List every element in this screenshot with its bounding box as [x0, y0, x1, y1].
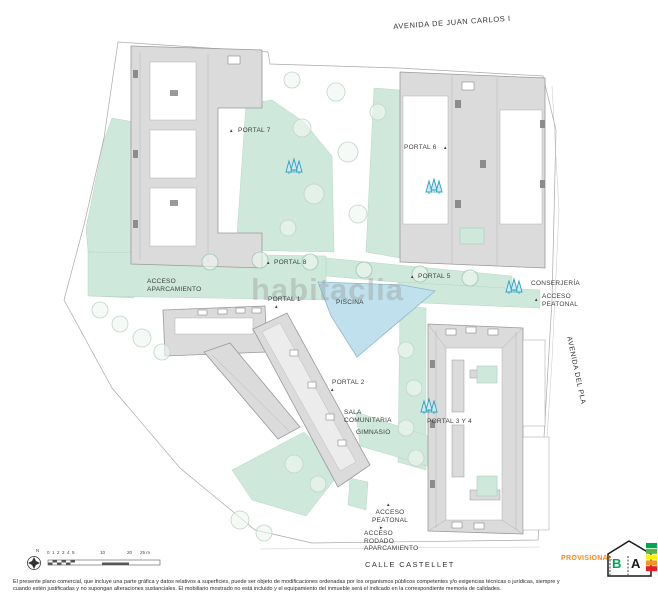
compass-north-label: N: [36, 549, 39, 554]
label-acceso-peatonal-este: ACCESO PEATONAL: [542, 293, 578, 308]
scale-tick: 1: [52, 551, 55, 556]
label-portal-6: PORTAL 6: [404, 144, 437, 152]
disclaimer-line-1: El presente plano comercial, que incluye…: [13, 579, 653, 586]
marker-portal-6-icon: ▲: [443, 146, 447, 151]
marker-portal-5-icon: ▲: [410, 275, 414, 280]
energy-letter-b: B: [612, 557, 621, 570]
label-portal-1: PORTAL 1: [268, 296, 301, 304]
site-plan-page: habitaclia AVENIDA DE JUAN CARLOS I AVEN…: [0, 0, 658, 600]
label-portal-7: PORTAL 7: [238, 127, 271, 135]
label-acceso-rodado: ACCESO RODADO APARCAMIENTO: [364, 530, 418, 553]
label-acceso-aparcamiento: ACCESO APARCAMIENTO: [147, 278, 201, 293]
label-gimnasio: GIMNASIO: [356, 429, 391, 437]
street-calle-castellet: CALLE CASTELLET: [365, 560, 455, 569]
label-acceso-peatonal-sur: ACCESO PEATONAL: [362, 509, 418, 524]
marker-portal-7-icon: ▲: [229, 129, 233, 134]
scale-tick: 10: [100, 551, 105, 556]
scale-bar: [48, 560, 160, 565]
label-portal-3-4: PORTAL 3 Y 4: [427, 418, 472, 426]
scale-tick: 0: [47, 551, 50, 556]
marker-acceso-peatonal-sur-icon: ▲: [386, 503, 390, 508]
disclaimer-line-2: cuando estén justificadas y no supongan …: [13, 586, 653, 593]
label-sala-comunitaria: SALA COMUNITARIA: [344, 409, 392, 424]
label-conserjeria: CONSERJERÍA: [531, 280, 580, 288]
scale-tick: 25 m: [140, 551, 150, 556]
label-portal-5: PORTAL 5: [418, 273, 451, 281]
marker-portal-8-icon: ▲: [266, 261, 270, 266]
marker-portal-1-icon: ▲: [274, 305, 278, 310]
building-portal-6-5: [400, 72, 545, 268]
scale-tick: 20: [127, 551, 132, 556]
scale-tick: 2: [57, 551, 60, 556]
building-portal-3-4: [428, 324, 549, 534]
marker-portal-2-icon: ▲: [330, 388, 334, 393]
label-piscina: PISCINA: [336, 299, 364, 307]
scale-tick: 5: [72, 551, 75, 556]
marker-acceso-peatonal-este-icon: ▲: [534, 298, 538, 303]
label-portal-8: PORTAL 8: [274, 259, 307, 267]
scale-tick: 4: [67, 551, 70, 556]
label-portal-2: PORTAL 2: [332, 379, 365, 387]
provisional-stamp: PROVISIONAL: [561, 555, 613, 562]
scale-tick: 3: [62, 551, 65, 556]
energy-letter-a: A: [631, 557, 640, 570]
compass-icon: [28, 557, 41, 570]
